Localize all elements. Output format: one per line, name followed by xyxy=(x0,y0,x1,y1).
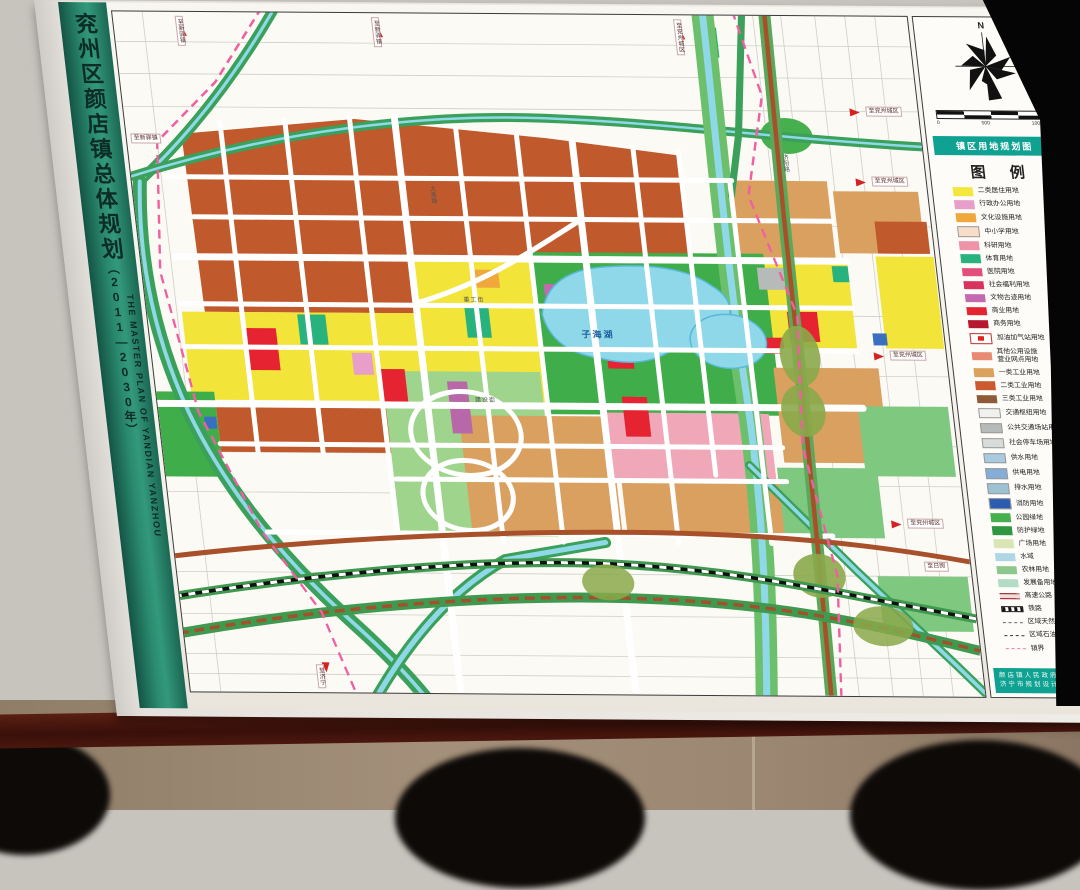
legend-swatch xyxy=(959,241,980,250)
legend-item-label: 发展备用地 xyxy=(1023,579,1058,587)
legend-swatch xyxy=(985,468,1008,479)
legend-item-label: 社会福利用地 xyxy=(988,281,1030,289)
legend-swatch xyxy=(969,333,992,344)
shoe-shadow xyxy=(850,740,1080,890)
legend-line-symbol xyxy=(1001,607,1024,613)
legend-line-symbol xyxy=(1006,648,1026,649)
legend-swatch xyxy=(960,255,981,264)
legend-item-label: 中小学用地 xyxy=(984,228,1019,236)
legend-swatch xyxy=(983,453,1006,464)
legend-item-label: 水域 xyxy=(1020,553,1035,561)
legend-item-label: 高速公路 xyxy=(1024,592,1052,600)
legend-swatch xyxy=(978,408,1001,419)
legend-item-label: 排水用地 xyxy=(1014,485,1042,493)
legend-swatch xyxy=(993,540,1014,549)
legend-item-label: 文物古迹用地 xyxy=(990,294,1032,302)
legend-swatch xyxy=(981,438,1004,449)
edge-label: 至济宁 xyxy=(316,664,327,688)
legend-item-label: 供电用地 xyxy=(1012,470,1040,478)
legend-item-label: 广场用地 xyxy=(1018,540,1046,548)
legend-swatch xyxy=(972,352,993,361)
legend-swatch xyxy=(965,294,986,303)
legend-swatch xyxy=(998,579,1019,588)
north-label: N xyxy=(977,20,985,30)
sheet-title-banner: 镇区用地规划图 xyxy=(933,136,1057,156)
legend-item-label: 三类工业用地 xyxy=(1002,395,1044,403)
legend-swatch xyxy=(968,320,989,329)
legend-item-label: 供水用地 xyxy=(1010,455,1038,463)
legend-swatch xyxy=(954,200,975,209)
edge-label: 至新驿镇 xyxy=(175,16,186,46)
edge-label: 至新驿镇 xyxy=(371,17,382,47)
legend-item-label: 社会停车场用地 xyxy=(1009,439,1058,447)
legend-item-label: 交通枢纽用地 xyxy=(1005,409,1047,417)
edge-label: 至兖州城区 xyxy=(673,19,685,55)
legend-swatch xyxy=(995,553,1016,562)
legend-swatch xyxy=(976,395,997,404)
legend-item-label: 体育用地 xyxy=(985,255,1013,263)
legend-line-symbol xyxy=(999,593,1020,599)
shoe-shadow xyxy=(395,748,645,888)
legend-item-label: 公园绿地 xyxy=(1015,514,1043,522)
legend-item-label: 商务用地 xyxy=(993,321,1021,329)
edge-label: 至兖州城区 xyxy=(865,107,902,117)
floor-tile-seam xyxy=(752,728,755,810)
legend-item-label: 农林用地 xyxy=(1021,566,1049,574)
edge-label: 至兖州城区 xyxy=(889,351,926,361)
legend-swatch xyxy=(987,483,1010,494)
legend-item-label: 文化设施用地 xyxy=(981,214,1023,222)
legend-swatch xyxy=(992,526,1013,535)
legend-swatch xyxy=(963,281,984,290)
legend-item-label: 一类工业用地 xyxy=(999,369,1041,377)
legend-swatch xyxy=(966,307,987,316)
edge-label: 至兖州城区 xyxy=(871,177,908,187)
legend-swatch xyxy=(962,268,983,277)
edge-label: 至日照 xyxy=(924,562,949,572)
legend-swatch xyxy=(957,226,980,237)
road-label: 建设街 xyxy=(475,398,497,404)
scale-tick: 0 xyxy=(937,120,940,126)
legend-line-symbol xyxy=(1003,622,1023,623)
scale-bar-graphic xyxy=(936,110,1047,120)
scale-tick: 500 xyxy=(981,120,990,126)
legend-swatch xyxy=(952,187,973,196)
legend-swatch xyxy=(988,498,1011,509)
edge-label: 至新驿镇 xyxy=(130,133,161,143)
legend-swatch xyxy=(996,566,1017,575)
edge-label: 至兖州城区 xyxy=(907,518,944,528)
legend-item-label: 镇界 xyxy=(1030,645,1045,653)
legend-swatch xyxy=(980,423,1003,434)
legend-swatch xyxy=(975,382,996,391)
book-page: 兖州区颜店镇总体规划（2011—2030年） THE MASTER PLAN O… xyxy=(58,2,1080,715)
legend-item-label: 防护绿地 xyxy=(1017,527,1045,535)
legend-item-label: 科研用地 xyxy=(984,242,1012,250)
legend-item-label: 商业用地 xyxy=(991,307,1019,315)
legend-swatch xyxy=(990,513,1011,522)
map-frame: 子海湖至新驿镇至新驿镇至兖州城区至新驿镇至兖州城区至兖州城区至兖州城区至兖州城区… xyxy=(111,10,987,698)
legend-item-label: 铁路 xyxy=(1028,606,1043,614)
road-label: 重工街 xyxy=(463,298,485,304)
legend-line-symbol xyxy=(1004,635,1024,636)
legend-item-label: 加油加气站用地 xyxy=(997,335,1046,343)
road-label: 大禹路 xyxy=(428,185,436,203)
legend-swatch xyxy=(973,368,994,377)
legend-item-label: 行政办公用地 xyxy=(979,201,1021,209)
legend-item-label: 消防用地 xyxy=(1016,500,1044,508)
legend-item-label: 其他公用设施 营业网点用地 xyxy=(996,348,1039,364)
legend-item-label: 医院用地 xyxy=(987,268,1015,276)
legend-item-label: 二类居住用地 xyxy=(978,188,1020,196)
map-label-layer: 子海湖至新驿镇至新驿镇至兖州城区至新驿镇至兖州城区至兖州城区至兖州城区至兖州城区… xyxy=(112,11,985,697)
road-label: 济阳路 xyxy=(781,154,789,172)
lake-label: 子海湖 xyxy=(581,330,615,339)
legend-swatch xyxy=(955,213,976,222)
legend-item-label: 二类工业用地 xyxy=(1000,382,1042,390)
